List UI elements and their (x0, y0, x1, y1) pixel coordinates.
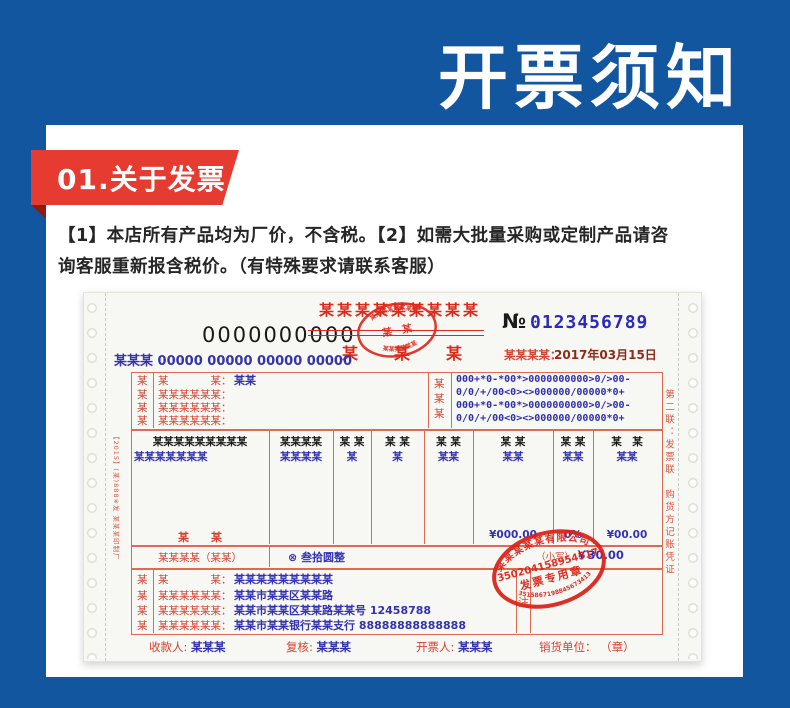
reviewer-field: 复核: 某某某 (286, 639, 351, 655)
buyer-code-line: 000+*0-*00*>0000000000>0/>00- (456, 400, 631, 411)
print-info-vertical-text: 【2015】(某)888※发 某某某印制厂 (112, 433, 122, 561)
seller-row-value: 某某市某某区某某路某某号 12458788 (234, 602, 431, 618)
buyer-row-value: 某某 (234, 372, 256, 388)
item-table-header: 某 某 (473, 434, 553, 449)
buyer-mid-char: 某 (434, 391, 445, 406)
buyer-row-label: 某某某某某某： (158, 413, 232, 428)
seller-row-label: 某某某某某某： (158, 588, 232, 603)
perforation-line-left (105, 293, 106, 661)
item-table-value: 某 (333, 449, 371, 464)
item-table-header: 某 某 (593, 434, 661, 449)
item-table-value: 某某 (473, 449, 553, 464)
item-table-value: 某某某某 (269, 449, 333, 464)
invoice-date-value: 2017年03月15日 (554, 346, 657, 363)
seller-row-value: 某某某某某某某某某 (234, 571, 333, 587)
drawer-field: 开票人: 某某某 (416, 639, 493, 655)
perforation-holes-left (84, 295, 100, 659)
payee-label: 收款人: (149, 640, 187, 654)
item-table-footer-label: 某 某 (131, 529, 269, 545)
section-badge-fold (31, 205, 46, 219)
seller-unit-value: （章） (600, 640, 635, 654)
buyer-box-divider-2 (428, 372, 429, 428)
page-title: 开票须知 (438, 22, 742, 123)
invoice-date-label: 某某某某： (504, 347, 562, 363)
seller-row-label: 某某某某某某： (158, 618, 232, 633)
seller-unit-field: 销货单位： （章） (539, 639, 635, 655)
item-table-header: 某某某某 (269, 434, 333, 449)
reviewer-value: 某某某 (317, 640, 352, 654)
seller-unit-label: 销货单位： (539, 640, 597, 654)
invoice-code-line: 某某某 00000 00000 00000 00000 (114, 350, 352, 369)
drawer-label: 开票人: (416, 640, 454, 654)
section-badge-label: 01.关于发票 (31, 158, 226, 198)
item-table-header: 某 某 (424, 434, 473, 449)
section-badge: 01.关于发票 (31, 150, 239, 205)
buyer-side-char: 某 (137, 413, 148, 428)
buyer-mid-char: 某 (434, 376, 445, 391)
invoice-special-seal-icon: 某某某某某有限公司 350204158954517 发票专用章 35158671… (479, 521, 619, 617)
perforation-holes-right (685, 295, 701, 659)
seller-box-divider-1 (153, 569, 154, 633)
invoice-no-value: 0123456789 (530, 312, 648, 333)
item-table-header: 某 某 (553, 434, 593, 449)
buyer-side-char: 某 (137, 373, 148, 388)
reviewer-label: 复核: (286, 640, 313, 654)
item-table-value: 某 (371, 449, 424, 464)
totals-row-divider (269, 546, 270, 567)
item-table-value: 某某 (593, 449, 661, 464)
seller-row-value: 某某市某某区某某路 (234, 587, 333, 603)
item-table-header: 某 某 (371, 434, 424, 449)
buyer-code-line: 0/0/+/00<0><>000000/00000*0+ (456, 413, 625, 424)
payee-value: 某某某 (191, 640, 226, 654)
notice-line-2: 询客服重新报含税价。（有特殊要求请联系客服） (58, 252, 718, 283)
seller-side-char: 某 (137, 603, 148, 618)
perforation-line-right (678, 293, 679, 661)
payee-field: 收款人: 某某某 (149, 639, 226, 655)
drawer-value: 某某某 (458, 640, 493, 654)
amount-in-words: ⊗ 叁拾圆整 (288, 549, 345, 565)
seller-row-label: 某 某： (158, 572, 232, 587)
seller-side-char: 某 (137, 618, 148, 633)
seller-row-label: 某某某某某某： (158, 603, 232, 618)
buyer-box-divider-3 (451, 372, 452, 428)
buyer-box-divider-1 (153, 372, 154, 428)
tax-supervision-stamp-icon: 某某某某某某某某 某 某 某某某某某某 (350, 299, 444, 361)
item-table-value: 某某 (424, 449, 473, 464)
buyer-code-line: 000+*0-*00*>0000000000>0/>00- (456, 374, 631, 385)
item-table-header: 某 某 (333, 434, 371, 449)
notice-paragraph: 【1】本店所有产品均为厂价，不含税。【2】如需大批量采购或定制产品请咨 询客服重… (58, 221, 718, 283)
invoice-sample-image: 【2015】(某)888※发 某某某印制厂 第二联：发票联 购货方记账凭证 00… (83, 292, 702, 662)
invoice-no-symbol: № (502, 309, 526, 333)
seller-side-char: 某 (137, 572, 148, 587)
seller-side-char: 某 (137, 588, 148, 603)
buyer-code-line: 0/0/+/00<0><>000000/00000*0+ (456, 387, 625, 398)
totals-label: 某某某某（某某） (131, 550, 269, 565)
item-table-value: 某某 (553, 449, 593, 464)
stamp-center-text: 某 某 (381, 321, 414, 339)
seller-row-value: 某某市某某银行某某支行 88888888888888 (234, 617, 466, 633)
item-table-value: 某某某某某某某 (134, 449, 208, 464)
buyer-mid-char: 某 (434, 406, 445, 421)
buyer-row-label: 某 某： (158, 373, 232, 388)
notice-line-1: 【1】本店所有产品均为厂价，不含税。【2】如需大批量采购或定制产品请咨 (58, 221, 718, 252)
copy-info-vertical-text: 第二联：发票联 购货方记账凭证 (661, 389, 675, 604)
item-table-header: 某某某某某某某某某 (131, 434, 269, 449)
